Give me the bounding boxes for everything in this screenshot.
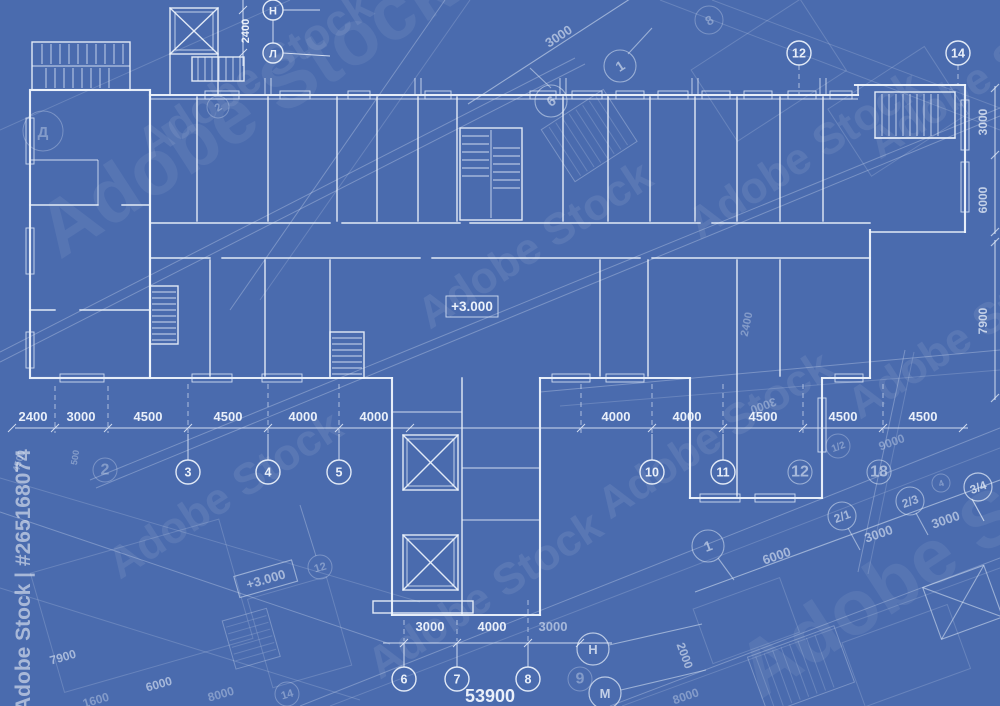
stair-annex bbox=[150, 286, 178, 344]
grid-bubble-label: 1/2 bbox=[830, 440, 847, 455]
grid-bubble-label: 8 bbox=[525, 673, 532, 687]
grid-bubble-label: Н bbox=[269, 6, 277, 18]
grid-bubble-label: 14 bbox=[280, 687, 296, 702]
dim-label: 4500 bbox=[749, 409, 778, 424]
dim-label: 4500 bbox=[909, 409, 938, 424]
grid-bubble-label: 3 bbox=[185, 466, 192, 480]
dim-label: 7900 bbox=[976, 307, 990, 334]
blueprint-image: Adobe Stock Adobe Stock Adobe Stock Adob… bbox=[0, 0, 1000, 706]
dim-label: 1600 bbox=[81, 690, 111, 706]
dim-label: 2400 bbox=[739, 311, 756, 337]
dim-label: 8000 bbox=[206, 684, 236, 705]
elevation-label: +3.000 bbox=[244, 567, 287, 592]
stair-top-left bbox=[32, 42, 130, 90]
elevation-mark: +3.000 bbox=[446, 296, 498, 317]
watermark-text: Adobe Stock bbox=[359, 501, 612, 689]
dim-label: 4000 bbox=[673, 409, 702, 424]
dim-label: 3000 bbox=[976, 108, 990, 135]
grid-bubble-label: 1 bbox=[612, 57, 627, 75]
grid-bubble-label: Д bbox=[38, 124, 49, 141]
blueprint-canvas: Adobe Stock Adobe Stock Adobe Stock Adob… bbox=[0, 0, 1000, 706]
dim-label: 9000 bbox=[877, 431, 907, 453]
dim-label: 2400 bbox=[19, 409, 48, 424]
dim-label: 4000 bbox=[360, 409, 389, 424]
dim-label: 4000 bbox=[289, 409, 318, 424]
grid-bubble-label: 14 bbox=[951, 47, 965, 61]
grid-bubble-label: 10 bbox=[645, 466, 659, 480]
dim-label: 3000 bbox=[539, 619, 568, 634]
grid-bubble-label: 4 bbox=[265, 466, 272, 480]
grid-bubble-label: Л bbox=[269, 49, 277, 61]
elevator-shaft bbox=[403, 535, 458, 590]
grid-bubble-label: 5 bbox=[336, 466, 343, 480]
elevation-label: +3.000 bbox=[451, 299, 493, 314]
grid-bubble-label: М bbox=[600, 686, 611, 701]
grid-bubble-label: 4 bbox=[937, 478, 945, 489]
dim-label: 3000 bbox=[416, 619, 445, 634]
grid-bubble-label: 11 bbox=[716, 466, 729, 480]
grid-bubble-label: 2 bbox=[101, 462, 110, 479]
dim-label: 3000 bbox=[67, 409, 96, 424]
elevator-shaft bbox=[170, 8, 218, 54]
overlay-elevation-mark: +3.000 bbox=[234, 560, 298, 598]
dim-label: 3000 bbox=[542, 22, 574, 50]
dim-label: 4000 bbox=[478, 619, 507, 634]
grid-bubble-label: 18 bbox=[870, 464, 888, 481]
dim-label: 6000 bbox=[760, 544, 792, 568]
dim-label: 500 bbox=[69, 449, 81, 466]
grid-bubble-label: 2/3 bbox=[900, 492, 921, 511]
dim-label: 6000 bbox=[976, 186, 990, 213]
dim-label: 4500 bbox=[829, 409, 858, 424]
dim-label: 4500 bbox=[134, 409, 163, 424]
grid-bubble-label: 9 bbox=[576, 671, 585, 688]
watermark-text: Adobe Stock bbox=[589, 341, 842, 529]
grid-bubble-label: 7 bbox=[454, 673, 461, 687]
grid-bubble-label: 12 bbox=[313, 561, 328, 576]
dim-label: 2400 bbox=[240, 19, 252, 43]
dim-labels-main: 2400 3000 4500 4500 4000 4000 4000 4000 … bbox=[19, 409, 938, 424]
dim-label: 8000 bbox=[671, 685, 701, 706]
grid-bubble-label: 6 bbox=[401, 673, 408, 687]
dim-label: 6000 bbox=[144, 674, 174, 695]
total-dimension-label: 53900 bbox=[465, 686, 515, 706]
watermark-text: Adobe Stock bbox=[99, 401, 352, 589]
watermark-text: Adobe Stock bbox=[409, 151, 662, 339]
stair-core-central bbox=[460, 128, 522, 220]
dim-label: 4500 bbox=[214, 409, 243, 424]
grid-bubble-label: 12 bbox=[792, 47, 806, 61]
dim-label: 4000 bbox=[602, 409, 631, 424]
dim-label: 2000 bbox=[674, 641, 696, 671]
grid-bubble-label: 2/1 bbox=[832, 507, 853, 526]
grid-bubble-label: Н bbox=[588, 642, 597, 657]
stock-id-watermark: Adobe Stock | #265168074 bbox=[12, 449, 35, 706]
stair-lower bbox=[330, 332, 364, 378]
grid-bubble-label: 12 bbox=[791, 464, 809, 481]
watermark-layer: Adobe Stock Adobe Stock Adobe Stock Adob… bbox=[21, 0, 1000, 706]
elevator-shaft bbox=[403, 435, 458, 490]
grid-bubble-label: 1 bbox=[702, 537, 715, 555]
